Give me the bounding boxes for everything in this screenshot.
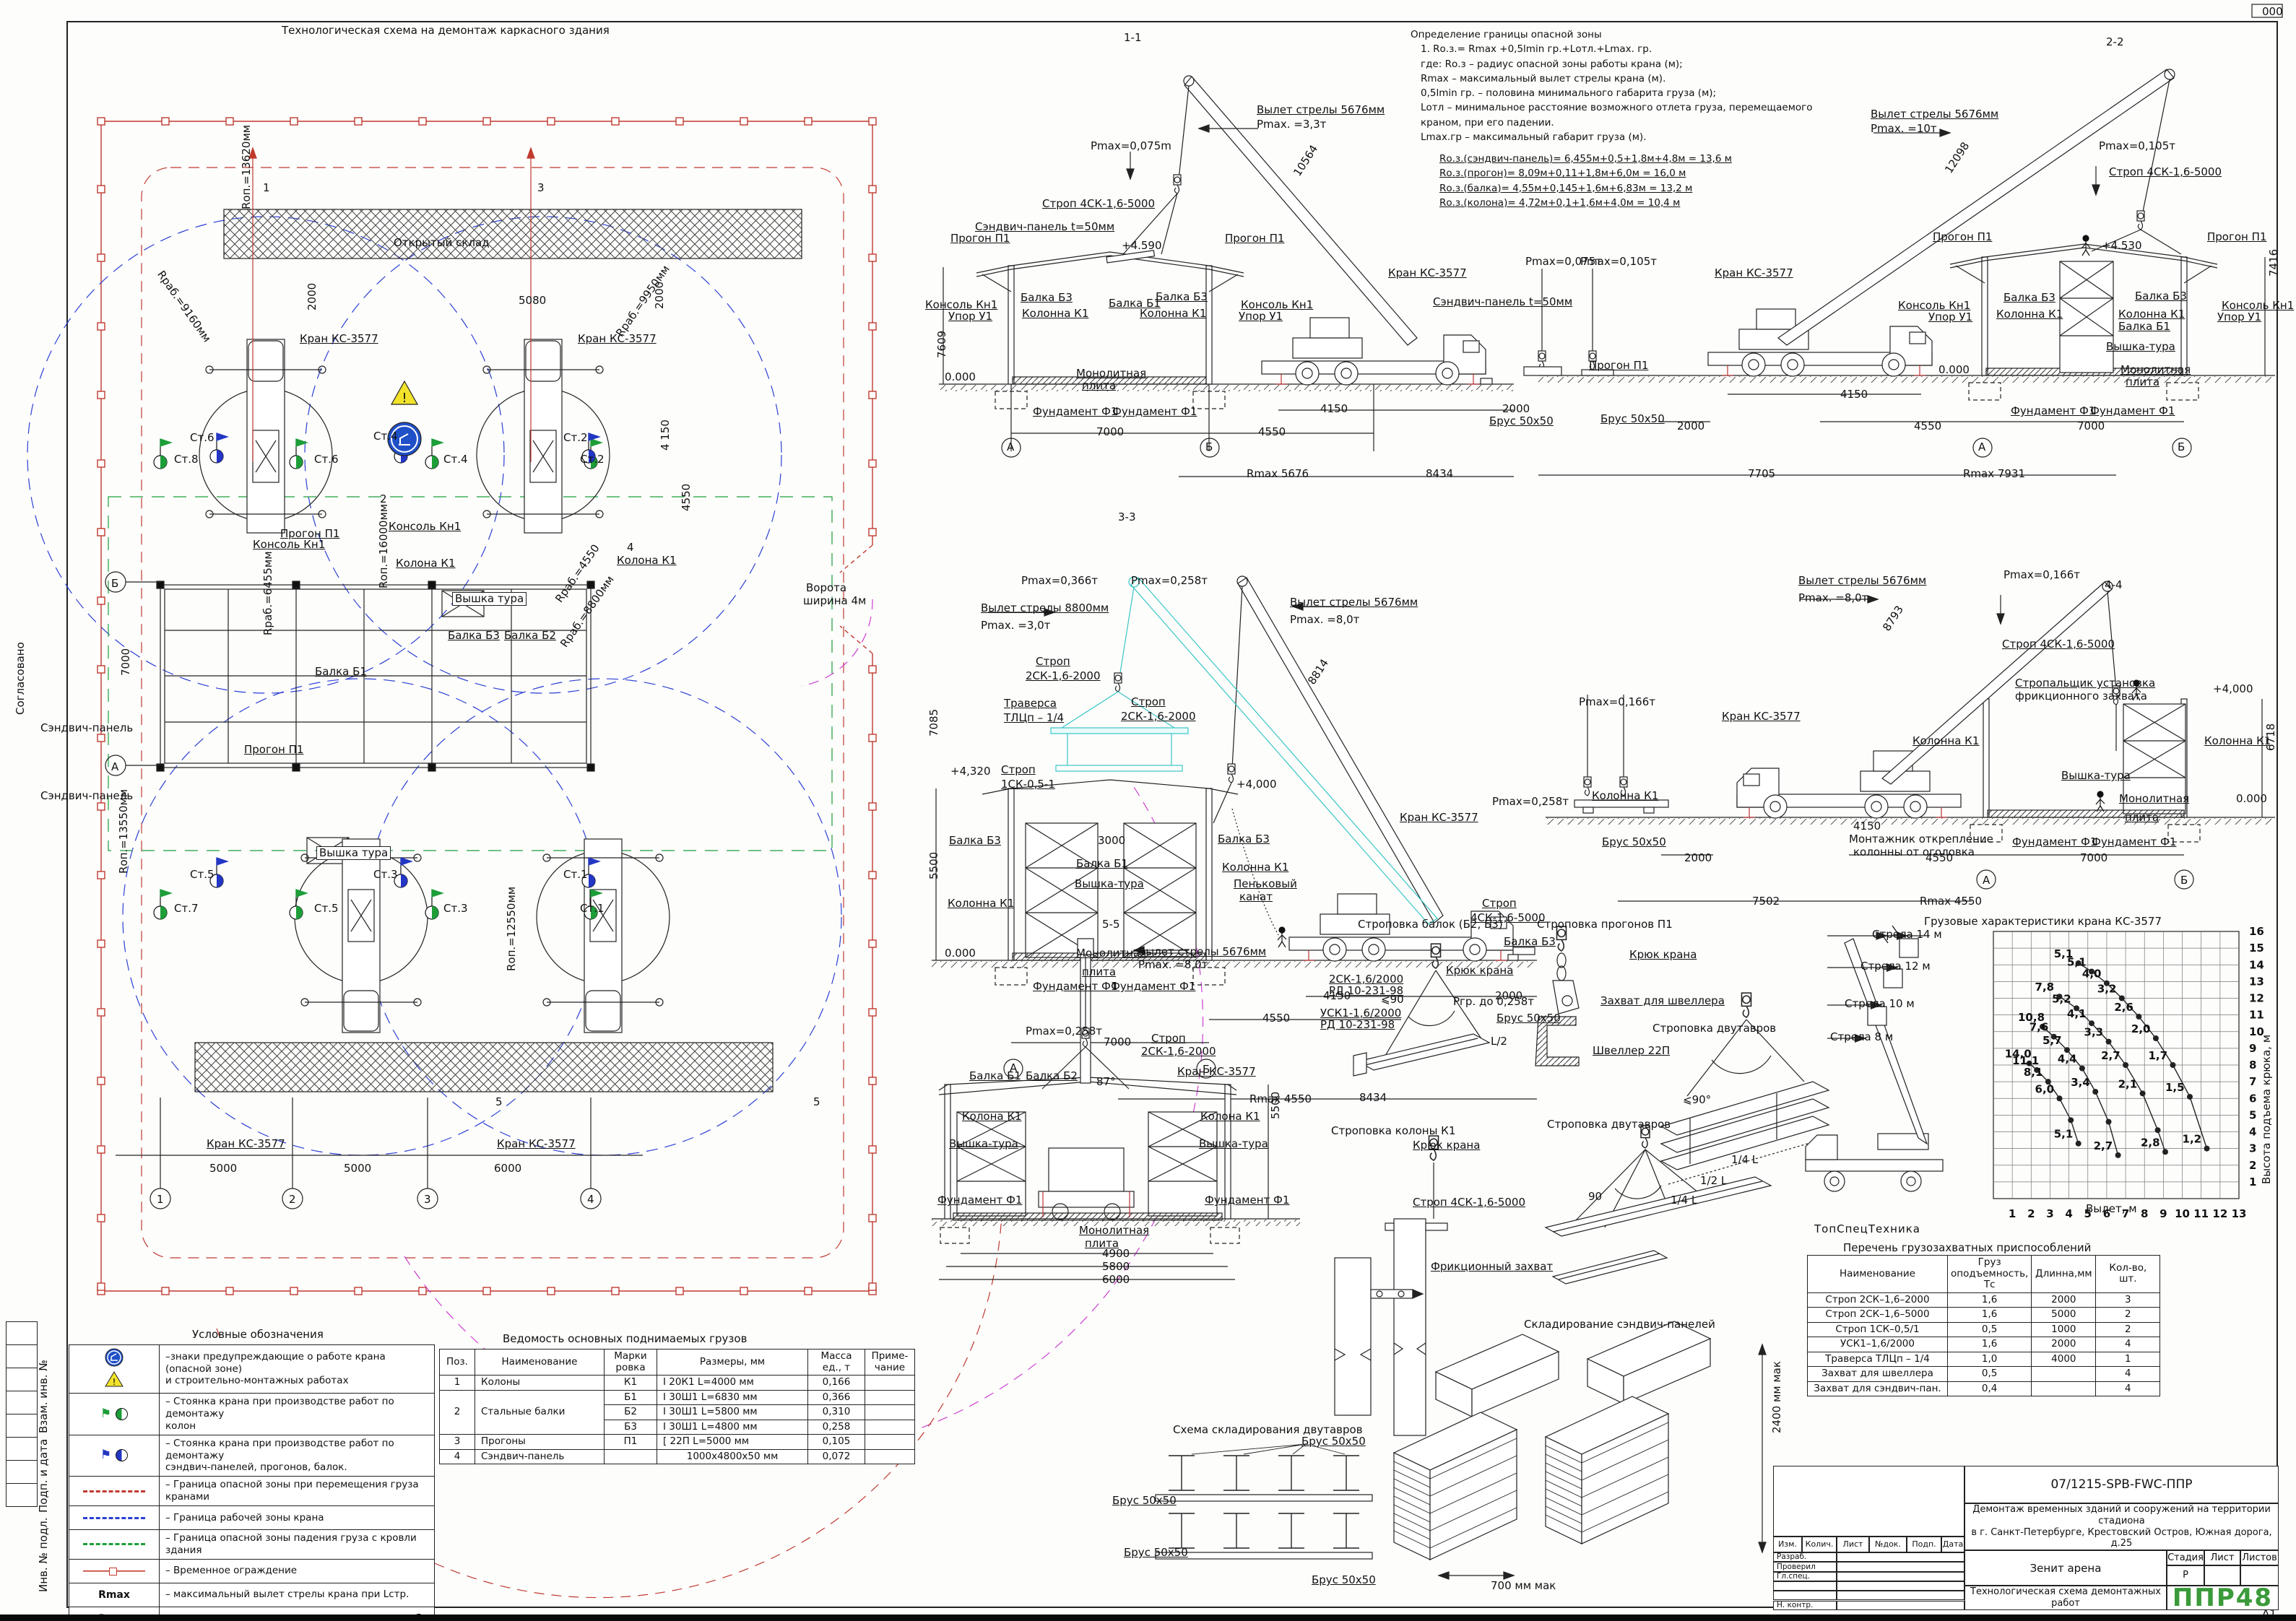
label-s11: 1-1 — [1124, 32, 1142, 44]
label-s22: Прогон П1 — [1933, 231, 1992, 243]
table-cell: Б3 — [605, 1420, 657, 1435]
label-plan: Ст.4 — [443, 453, 468, 466]
doc-number: 07/1215-SPB-FWC-ППР — [1964, 1466, 2279, 1503]
svg-text:1: 1 — [2249, 1175, 2256, 1188]
label-s33: Балка Б3 — [1504, 936, 1556, 948]
label-s33: 0.000 — [945, 947, 976, 960]
label-s33: Pmax=0,258т — [1131, 575, 1208, 587]
svg-text:9: 9 — [2249, 1042, 2256, 1055]
danger-zone-result: Rо.з.(балка)= 4,55м+0,145+1,6м+6,83м = 1… — [1439, 181, 1815, 196]
label-s22: 0.000 — [1938, 364, 1970, 376]
legend-symbol-Rmax: Rmax — [69, 1583, 160, 1607]
label-s11: Сэндвич-панель t=50мм — [1433, 296, 1572, 308]
label-plan: Вышка тура — [452, 592, 527, 606]
label-chart: Стрела 10 м — [1845, 998, 1915, 1010]
tb-sign-cell — [1837, 1552, 1964, 1562]
svg-text:3: 3 — [2249, 1142, 2256, 1155]
label-s33: Pmax=0,366т — [1021, 575, 1098, 587]
side-stamp-box — [6, 1321, 38, 1507]
label-s22: 7705 — [1748, 468, 1775, 480]
label-s33: 4550 — [1262, 1012, 1290, 1025]
label-plan: 3 — [424, 1194, 431, 1206]
label-s44: А — [1983, 874, 1990, 887]
tb-head-col: Лист — [1837, 1537, 1869, 1552]
svg-text:11: 11 — [2193, 1207, 2209, 1220]
label-s55: Колона К1 — [962, 1111, 1022, 1123]
table-row: 4Сэндвич-панель1000х4800х50 мм0,072 — [440, 1449, 915, 1464]
label-s44: Строп 4СК-1,6-5000 — [2002, 638, 2115, 651]
label-plan: 1 — [263, 182, 270, 194]
svg-text:1,2: 1,2 — [2183, 1133, 2202, 1146]
table-cell: 4 — [2096, 1337, 2160, 1352]
label-s33: Pmax. =8,0т — [1290, 614, 1359, 626]
legend-symbol-signs: ! — [69, 1345, 160, 1393]
label-s44: 2000 — [1684, 852, 1712, 864]
svg-text:2,7: 2,7 — [2101, 1049, 2120, 1062]
tb-sign-row — [1773, 1581, 1837, 1591]
label-s33: 3-3 — [1118, 511, 1136, 523]
label-plan: Б — [111, 578, 118, 590]
legend-text: – Граница опасной зоны падения груза с к… — [160, 1530, 434, 1559]
legend-row: Rmax– максимальный вылет стрелы крана пр… — [69, 1583, 434, 1607]
label-s33: Балка Б3 — [949, 835, 1001, 847]
label-plan: ширина 4м — [803, 595, 866, 607]
table-cell: 4 — [440, 1449, 475, 1464]
label-s22: Прогон П1 — [2207, 231, 2266, 243]
table-header: Приме- чание — [865, 1350, 915, 1376]
table-cell — [865, 1435, 915, 1450]
table-cell: Строп 2СК–1,6–5000 — [1808, 1308, 1948, 1323]
label-plan: 3 — [537, 182, 545, 194]
label-plan: 5 — [813, 1096, 820, 1108]
label-plan: 7000 — [120, 648, 132, 676]
label-s33: Фундамент Ф1 — [1111, 981, 1195, 993]
table-cell: 1,6 — [1948, 1337, 2032, 1352]
object-name: Зенит арена — [1964, 1550, 2167, 1586]
label-plan: Прогон П1 — [244, 744, 303, 756]
table-header: Масса ед., т — [808, 1350, 865, 1376]
legend-row: ⚑– Стоянка крана при производстве работ … — [69, 1435, 434, 1477]
loads-table: Поз.НаименованиеМарки ровкаРазмеры, ммМа… — [439, 1349, 915, 1464]
label-s44: Pmax=0,166т — [2003, 569, 2080, 581]
svg-text:4,4: 4,4 — [2058, 1053, 2077, 1066]
sheet-label: Лист — [2204, 1550, 2240, 1565]
label-s55: Строп — [1151, 1033, 1186, 1045]
table-header: Марки ровка — [605, 1350, 657, 1376]
label-s55: 6000 — [1102, 1274, 1130, 1286]
table-cell: П1 — [605, 1435, 657, 1450]
label-s55: Монолитная — [1079, 1225, 1149, 1237]
label-s33: Фундамент Ф1 — [1033, 981, 1117, 993]
label-s55: 5800 — [1102, 1261, 1130, 1273]
svg-text:3,3: 3,3 — [2084, 1026, 2104, 1039]
tb-sign-cell — [1837, 1601, 1964, 1610]
label-s11: Rmax 5676 — [1247, 468, 1309, 480]
drawing-sheet: ! — [0, 0, 2296, 1621]
legend-text: – Граница рабочей зоны крана — [160, 1510, 330, 1526]
svg-text:7: 7 — [2249, 1075, 2256, 1088]
label-s33: плита — [1082, 966, 1116, 978]
legend-text: – Временное ограждение — [160, 1563, 303, 1579]
label-s33: Балка Б1 — [1076, 858, 1128, 870]
svg-text:9: 9 — [2159, 1207, 2167, 1220]
label-s22: 2000 — [1677, 420, 1704, 433]
label-s55: Фундамент Ф1 — [1205, 1194, 1289, 1207]
label-s22: Вылет стрелы 5676мм — [1871, 108, 1998, 121]
table-cell: 0,105 — [808, 1435, 865, 1450]
table-cell: 1 — [2096, 1352, 2160, 1367]
label-plan: 5000 — [344, 1162, 371, 1175]
label-s44: Б — [2180, 874, 2188, 887]
svg-text:8: 8 — [2249, 1059, 2256, 1072]
label-plan: Rраб.=6455мм — [262, 551, 274, 635]
label-s44: Фундамент Ф1 — [2092, 836, 2176, 848]
label-s22: Балка Б3 — [2135, 290, 2187, 303]
label-s11: 7609 — [936, 331, 948, 358]
label-s22: Pmax=0,105т — [1580, 256, 1657, 268]
label-stock: Брус 50x50 — [1124, 1547, 1188, 1559]
svg-text:5,2: 5,2 — [2052, 992, 2071, 1005]
label-plan: 1 — [157, 1194, 164, 1206]
label-stock: 2400 мм мак — [1771, 1361, 1783, 1433]
legend-row: – Граница опасной зоны падения груза с к… — [69, 1530, 434, 1560]
label-s44: 4550 — [1925, 852, 1953, 864]
label-s55: Кран КС-3577 — [1177, 1066, 1256, 1078]
tb-sign-row — [1773, 1591, 1837, 1600]
label-s22: А — [1978, 441, 1985, 453]
label-rig: Строповка двутавров — [1547, 1118, 1671, 1131]
table-cell: 2 — [2096, 1322, 2160, 1337]
label-plan: Ст.6 — [314, 453, 339, 466]
label-s11: Фундамент Ф1 — [1112, 406, 1197, 418]
label-plan: 4550 — [680, 484, 693, 511]
label-s22: Rmax 7931 — [1963, 468, 2025, 480]
tb-sign-cell — [1837, 1581, 1964, 1591]
sheets-value — [2240, 1565, 2279, 1586]
label-stock: Брус 50x50 — [1301, 1435, 1366, 1448]
label-s22: плита — [2126, 376, 2159, 388]
label-rig: Фрикционный захват — [1431, 1261, 1553, 1273]
tb-head-col: Изм. — [1773, 1537, 1802, 1552]
title-block: 07/1215-SPB-FWC-ППР Демонтаж временных з… — [1773, 1466, 2279, 1610]
table-cell: 0,072 — [808, 1449, 865, 1464]
label-s44: Стропальщик установка — [2015, 677, 2155, 690]
label-s22: Вышка-тура — [2106, 341, 2175, 353]
label-s33: +4,000 — [1236, 778, 1277, 791]
table-cell — [2032, 1381, 2096, 1396]
label-s44: фрикционного захвата — [2015, 690, 2147, 703]
rigging-table: НаименованиеГруз оподъемность, ТсДлинна,… — [1807, 1255, 2160, 1396]
table-cell: 0,4 — [1948, 1381, 2032, 1396]
label-s11: 2000 — [1502, 403, 1530, 415]
label-s33: Траверса — [1004, 697, 1057, 710]
label-s11: 4150 — [1320, 403, 1348, 415]
legend-text: – Стоянка крана при производстве работ п… — [160, 1394, 434, 1435]
label-plan: Ст.7 — [174, 903, 199, 915]
svg-text:4: 4 — [2065, 1207, 2072, 1220]
label-rig: Строповка прогонов П1 — [1537, 918, 1673, 931]
label-s44: 0.000 — [2236, 793, 2267, 805]
label-s33: 3000 — [1098, 835, 1125, 847]
table-row: Строп 2СК–1,6–50001,650002 — [1808, 1308, 2160, 1323]
label-chart: ТопСпецТехника — [1814, 1223, 1920, 1235]
label-s33: Колонна К1 — [948, 898, 1014, 910]
table-cell — [605, 1449, 657, 1464]
svg-text:2,1: 2,1 — [2118, 1077, 2138, 1090]
label-s22: Упор У1 — [2217, 311, 2261, 323]
label-s33: 7085 — [928, 709, 940, 736]
svg-text:!: ! — [113, 1377, 116, 1387]
label-plan: Кран КС-3577 — [207, 1138, 285, 1150]
table-cell: 1000х4800х50 мм — [657, 1449, 808, 1464]
svg-text:16: 16 — [2249, 925, 2264, 938]
label-s22: 4550 — [1914, 420, 1941, 433]
svg-text:4,1: 4,1 — [2067, 1007, 2087, 1020]
label-s11: Упор У1 — [1239, 310, 1283, 323]
label-s11: Прогон П1 — [950, 232, 1010, 245]
stage-value: Р — [2167, 1565, 2204, 1586]
label-s33: 1СК-0,5-1 — [1001, 778, 1055, 791]
label-plan: Открытый склад — [394, 237, 490, 249]
svg-text:5,7: 5,7 — [2042, 1034, 2062, 1047]
label-plan: Сэндвич-панель — [40, 722, 133, 734]
table-cell: 0,5 — [1948, 1367, 2032, 1382]
bottom-bar — [0, 1615, 2296, 1621]
table-cell: Ⅰ 20К1 L=4000 мм — [657, 1376, 808, 1391]
legend-row: – Временное ограждение — [69, 1560, 434, 1583]
label-s55: Pmax. =8,0т — [1138, 959, 1208, 971]
label-s22: 7416 — [2268, 249, 2280, 277]
tb-head-col: Дата — [1941, 1537, 1964, 1552]
table-cell — [2032, 1367, 2096, 1382]
label-s11: Колонна К1 — [1140, 308, 1206, 320]
label-s33: Брус 50x50 — [1496, 1012, 1561, 1025]
label-plan: Ст.6 — [190, 432, 215, 444]
table-cell: 5000 — [2032, 1308, 2096, 1323]
label-s55: 5-5 — [1102, 918, 1120, 931]
label-chart: Перечень грузозахватных приспособлений — [1843, 1242, 2091, 1254]
svg-text:11: 11 — [2249, 1009, 2264, 1022]
label-s11: 7000 — [1096, 426, 1124, 438]
table-cell: Сэндвич-панель — [475, 1449, 605, 1464]
label-s11: плита — [1082, 380, 1116, 392]
table-cell: Прогоны — [475, 1435, 605, 1450]
label-plan: Сэндвич-панель — [40, 790, 133, 802]
label-plan: Колона К1 — [617, 555, 677, 567]
table-cell: 2 — [2096, 1308, 2160, 1323]
table-cell — [865, 1420, 915, 1435]
label-s44: Колонна К1 — [1592, 790, 1658, 802]
table-cell: 0,366 — [808, 1390, 865, 1405]
label-rig: ⩽90° — [1683, 1094, 1711, 1106]
label-s33: Вышка-тура — [1075, 878, 1144, 890]
legend-text: –знаки предупреждающие о работе крана (о… — [160, 1349, 434, 1390]
svg-text:3,2: 3,2 — [2097, 983, 2117, 996]
tb-sign-cell — [1837, 1591, 1964, 1600]
label-s33: Вылет стрелы 5676мм — [1290, 596, 1418, 609]
side-stamp: Подп. и дата — [38, 1439, 50, 1513]
label-plan: Ст.8 — [174, 453, 199, 466]
table-cell: Строп 2СК–1,6–2000 — [1808, 1292, 1948, 1308]
label-plan: 5 — [495, 1096, 503, 1108]
table-cell: Ⅰ 30Ш1 L=5800 мм — [657, 1405, 808, 1420]
table-cell: Б2 — [605, 1405, 657, 1420]
sheet-title: Технологическая схема демонтажных работ — [1964, 1586, 2167, 1610]
table-cell — [865, 1405, 915, 1420]
label-s33: канат — [1239, 891, 1273, 903]
tb-sign-row: Гл.спец. — [1773, 1572, 1837, 1581]
label-s55: Вышка-тура — [949, 1138, 1018, 1150]
label-rig: Крюк крана — [1629, 949, 1697, 961]
label-s22: Б — [2178, 441, 2185, 453]
label-s33: Вылет стрелы 8800мм — [981, 602, 1109, 614]
label-plan: 2000 — [306, 283, 319, 310]
label-rig: Захват для швеллера — [1600, 995, 1725, 1007]
legend-text: – Граница опасной зоны при перемещения г… — [160, 1477, 434, 1505]
table-cell: 1,6 — [1948, 1292, 2032, 1308]
label-plan: 6000 — [494, 1162, 521, 1175]
table-cell: [ 22П L=5000 мм — [657, 1435, 808, 1450]
label-s33: Строп — [1482, 898, 1517, 910]
label-plan: 2 — [289, 1194, 296, 1206]
side-stamp: Взам. инв. № — [38, 1360, 50, 1433]
label-s33: Кран КС-3577 — [1400, 812, 1478, 824]
legend-symbol-dash-green — [69, 1530, 160, 1559]
table-header: Поз. — [440, 1350, 475, 1376]
tb-head-col: Колич. — [1802, 1537, 1837, 1552]
svg-text:5: 5 — [2249, 1108, 2256, 1121]
table-row: Строп 1СК–0,5/10,510002 — [1808, 1322, 2160, 1337]
label-s22: 7000 — [2077, 420, 2105, 433]
label-s22: 2-2 — [2106, 36, 2124, 48]
label-plan: Балка Б1 — [315, 666, 367, 678]
table-row: 1КолоныК1Ⅰ 20К1 L=4000 мм0,166 — [440, 1376, 915, 1391]
table-row: 2Стальные балкиБ1Ⅰ 30Ш1 L=6830 мм0,366 — [440, 1390, 915, 1405]
label-s11: 4550 — [1258, 426, 1286, 438]
label-s33: Строп — [1036, 656, 1070, 668]
label-s44: 4-4 — [2105, 579, 2123, 591]
label-s22: Балка Б3 — [2003, 292, 2055, 304]
label-s11: Брус 50x50 — [1489, 415, 1554, 427]
label-plan: Балка Б3 — [448, 630, 500, 642]
stage-label: Стадия — [2167, 1550, 2204, 1565]
label-plan: Rоп.=13620мм — [241, 125, 253, 209]
label-s44: Колонна К1 — [1912, 735, 1979, 747]
label-plan: А — [111, 761, 118, 773]
table-cell: 0,166 — [808, 1376, 865, 1391]
table-header: Наименование — [1808, 1256, 1948, 1293]
table-cell: 4 — [2096, 1381, 2160, 1396]
table-cell: 2 — [440, 1390, 475, 1435]
label-plan: Ст.1 — [563, 869, 588, 881]
label-s11: Б — [1205, 441, 1213, 453]
legend-text: – максимальный вылет стрелы крана при Lс… — [160, 1586, 415, 1603]
label-s33: Pmax. =3,0т — [981, 620, 1050, 632]
label-stock: 700 мм мак — [1491, 1580, 1556, 1592]
label-s44: Вышка-тура — [2061, 770, 2131, 782]
label-plan: Колона К1 — [396, 557, 456, 570]
label-chart: Стрела 12 м — [1860, 960, 1931, 973]
label-plan: Ст.3 — [373, 869, 398, 881]
label-plan: Ст.5 — [314, 903, 339, 915]
label-rig: Крюк крана — [1446, 965, 1513, 977]
label-rig: Строп 4СК-1,6-5000 — [1413, 1196, 1525, 1209]
svg-text:12: 12 — [2212, 1207, 2227, 1220]
svg-text:10: 10 — [2175, 1207, 2190, 1220]
table-cell: 4 — [2096, 1367, 2160, 1382]
table-cell: Ⅰ 30Ш1 L=4800 мм — [657, 1420, 808, 1435]
label-misc: 000 — [2262, 6, 2283, 18]
label-s11: Вылет стрелы 5676мм — [1257, 104, 1385, 116]
label-s11: Кран КС-3577 — [1388, 267, 1467, 279]
label-plan: 5080 — [519, 295, 546, 307]
label-plan: Вышка тура — [316, 846, 391, 860]
table-header: Размеры, мм — [657, 1350, 808, 1376]
label-s33: Балка Б3 — [1218, 833, 1270, 846]
label-s55: 4900 — [1102, 1248, 1130, 1260]
label-plan: Консоль Кн1 — [253, 539, 325, 551]
legend-symbol-dash-red — [69, 1477, 160, 1505]
label-plan: 2 — [380, 493, 387, 505]
danger-zone-line: Rmax – максимальный вылет стрелы крана (… — [1421, 71, 1815, 86]
svg-text:3,4: 3,4 — [2071, 1076, 2090, 1089]
label-s33: Монолитная — [1076, 947, 1146, 960]
label-plan: 5000 — [209, 1162, 237, 1175]
label-s44: Pmax=0,166т — [1579, 696, 1655, 708]
label-s11: Балка Б3 — [1021, 292, 1073, 304]
label-chart: Высота подъема крюка, м — [2261, 1035, 2273, 1184]
label-rig: Швеллер 22П — [1593, 1045, 1670, 1057]
svg-text:7,6: 7,6 — [2029, 1021, 2049, 1034]
label-rig: Строповка колоны К1 — [1331, 1125, 1455, 1137]
svg-text:6,0: 6,0 — [2035, 1082, 2055, 1095]
table-cell — [865, 1449, 915, 1464]
label-s55: Колона К1 — [1200, 1111, 1260, 1123]
label-s44: 7000 — [2080, 852, 2107, 864]
label-chart: Грузовые характеристики крана КС-3577 — [1924, 916, 2162, 928]
label-s11: Строп 4СК-1,6-5000 — [1042, 198, 1155, 210]
label-s44: Pmax. =8,0т — [1798, 592, 1868, 604]
label-rig: 90 — [1588, 1191, 1602, 1203]
label-s33: 2СК-1,6-2000 — [1121, 710, 1196, 723]
tb-sign-cell — [1837, 1572, 1964, 1581]
table-row: УСК1–1,6/20001,620004 — [1808, 1337, 2160, 1352]
label-s44: Колонна К1 — [2204, 735, 2271, 747]
sheet-value — [2204, 1565, 2240, 1586]
table-cell: 3 — [2096, 1292, 2160, 1308]
label-s22: Балка Б1 — [2118, 321, 2170, 333]
label-plan: Балка Б2 — [504, 630, 556, 642]
label-s11: А — [1007, 441, 1014, 453]
label-plan: Кран КС-3577 — [300, 333, 378, 345]
svg-text:13: 13 — [2249, 975, 2264, 988]
table-row: Строп 2СК–1,6–20001,620003 — [1808, 1292, 2160, 1308]
danger-zone-title: Определение границы опасной зоны — [1411, 27, 1815, 42]
label-s44: Вылет стрелы 5676мм — [1798, 575, 1926, 587]
table-cell: 4000 — [2032, 1352, 2096, 1367]
table-cell: 2000 — [2032, 1292, 2096, 1308]
label-s55: Фундамент Ф1 — [937, 1194, 1022, 1207]
table-cell: Б1 — [605, 1390, 657, 1405]
label-rig: L/2 — [1491, 1035, 1507, 1048]
label-misc: Условные обозначения — [192, 1329, 324, 1341]
svg-text:2,0: 2,0 — [2131, 1022, 2151, 1035]
svg-text:2: 2 — [2027, 1207, 2035, 1220]
label-plan: 4 — [627, 542, 634, 554]
label-s55: Вышка-тура — [1199, 1138, 1268, 1150]
label-s22: Упор У1 — [1928, 311, 1972, 323]
table-cell: 0,5 — [1948, 1322, 2032, 1337]
